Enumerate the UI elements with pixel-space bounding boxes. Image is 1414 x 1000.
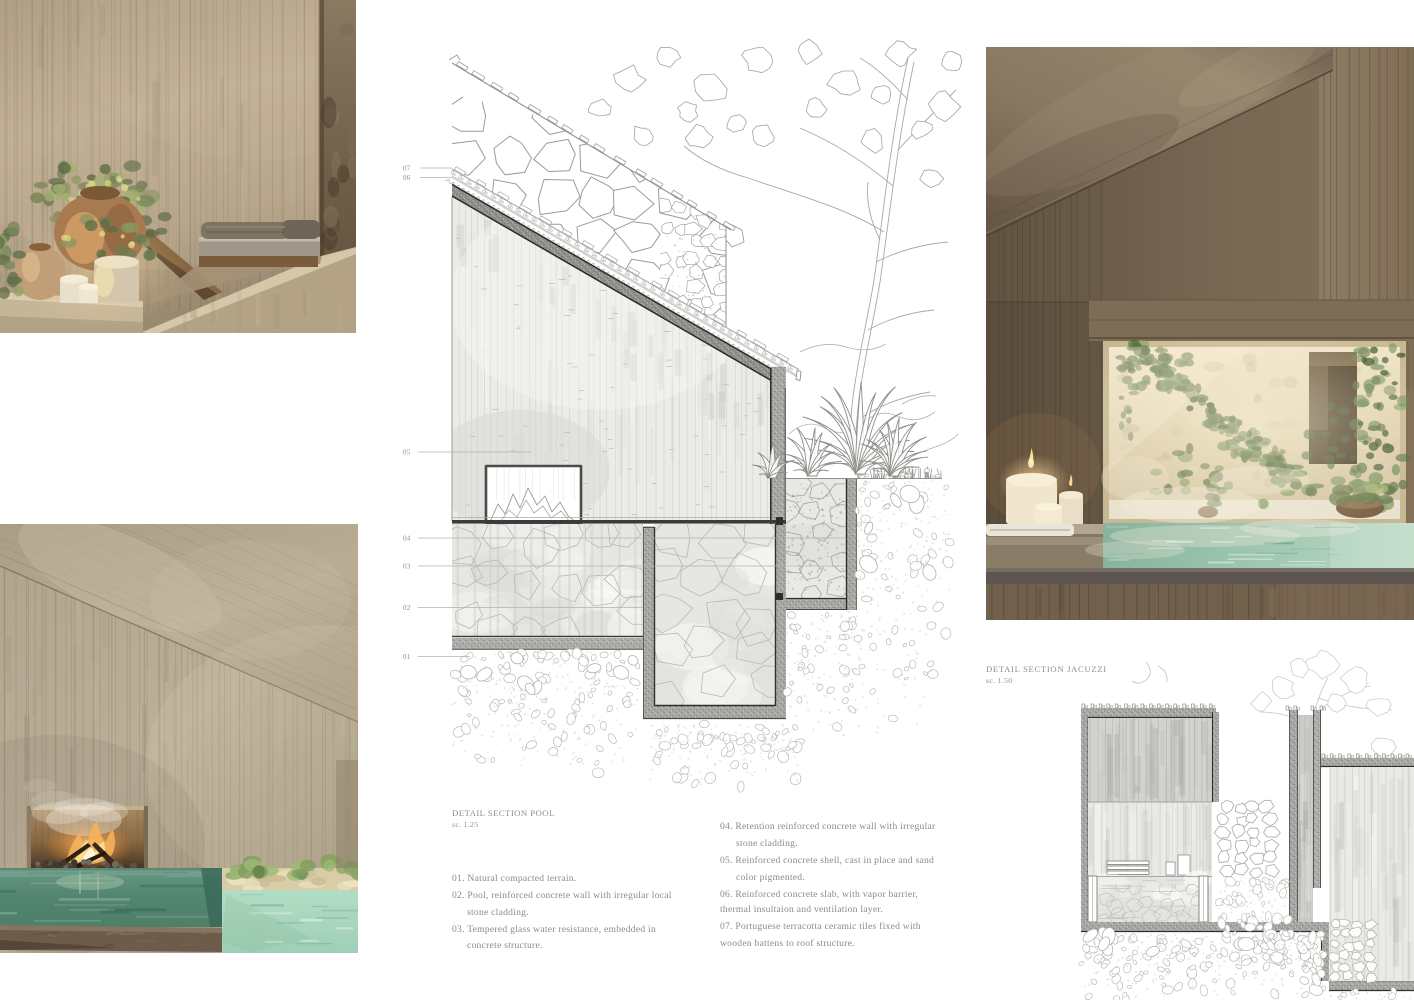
svg-text:03: 03: [403, 562, 411, 570]
svg-text:01. Natural compacted terrain.: 01. Natural compacted terrain.: [452, 873, 576, 884]
svg-text:04: 04: [403, 534, 411, 542]
svg-text:02: 02: [403, 604, 411, 612]
svg-text:thermal insultaion and ventila: thermal insultaion and ventilation layer…: [720, 904, 883, 915]
svg-text:01: 01: [403, 653, 411, 661]
svg-text:DETAIL SECTION JACUZZI: DETAIL SECTION JACUZZI: [986, 664, 1107, 674]
svg-text:04. Retention reinforced concr: 04. Retention reinforced concrete wall w…: [720, 821, 936, 832]
svg-text:color pigmented.: color pigmented.: [736, 872, 805, 883]
svg-text:07. Portuguese terracotta cera: 07. Portuguese terracotta ceramic tiles …: [720, 921, 921, 932]
svg-text:stone cladding.: stone cladding.: [467, 907, 529, 918]
svg-text:sc. 1.25: sc. 1.25: [452, 820, 478, 829]
svg-text:stone cladding.: stone cladding.: [736, 838, 798, 849]
svg-text:wooden battens to roof struct: wooden battens to roof structure.: [720, 938, 855, 949]
svg-text:03. Tempered glass water resis: 03. Tempered glass water resistance, emb…: [452, 924, 656, 935]
svg-text:concrete structure.: concrete structure.: [467, 940, 543, 951]
svg-text:sc. 1.50: sc. 1.50: [986, 676, 1012, 685]
svg-text:05: 05: [403, 448, 411, 456]
svg-text:DETAIL SECTION POOL: DETAIL SECTION POOL: [452, 808, 555, 818]
svg-text:07: 07: [403, 164, 411, 172]
svg-text:06. Reinforced concrete slab,: 06. Reinforced concrete slab, with vapor…: [720, 889, 918, 900]
svg-text:06: 06: [403, 174, 411, 182]
svg-text:02. Pool, reinforced concrete: 02. Pool, reinforced concrete wall with …: [452, 890, 672, 901]
svg-text:05. Reinforced concrete shell,: 05. Reinforced concrete shell, cast in p…: [720, 855, 934, 866]
